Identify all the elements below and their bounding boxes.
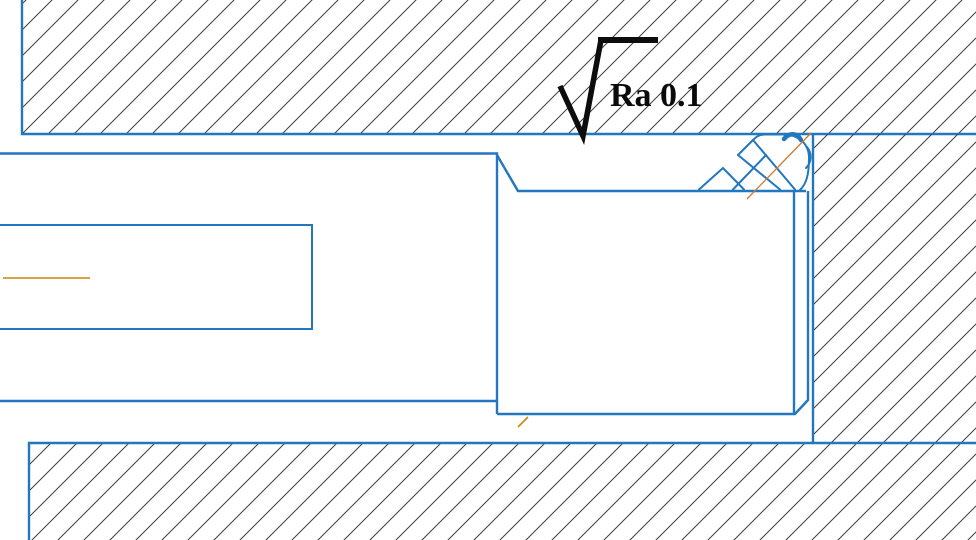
right-housing-hatch <box>813 134 976 443</box>
seal-band-left-edge <box>738 140 753 155</box>
seal-assembly <box>699 133 811 199</box>
gland-bottom-and-right-face <box>497 191 808 414</box>
rod-part <box>0 154 497 415</box>
seal-lip <box>784 134 801 140</box>
rod-inner-bore-outline <box>0 225 312 329</box>
gland-part <box>497 155 808 427</box>
upper-housing-hatch <box>22 0 976 134</box>
lower-housing-section <box>29 443 976 540</box>
gland-centerline-tick <box>518 417 528 427</box>
seal-band-upper-edge <box>753 140 795 190</box>
upper-housing-section <box>22 0 976 134</box>
rod-top-and-face-outline <box>0 154 497 415</box>
lower-housing-hatch <box>29 443 976 540</box>
roughness-label: Ra 0.1 <box>610 77 703 114</box>
cad-drawing: Ra 0.1 <box>0 0 976 540</box>
cad-canvas: Ra 0.1 <box>0 0 976 540</box>
right-housing-section <box>813 134 976 443</box>
